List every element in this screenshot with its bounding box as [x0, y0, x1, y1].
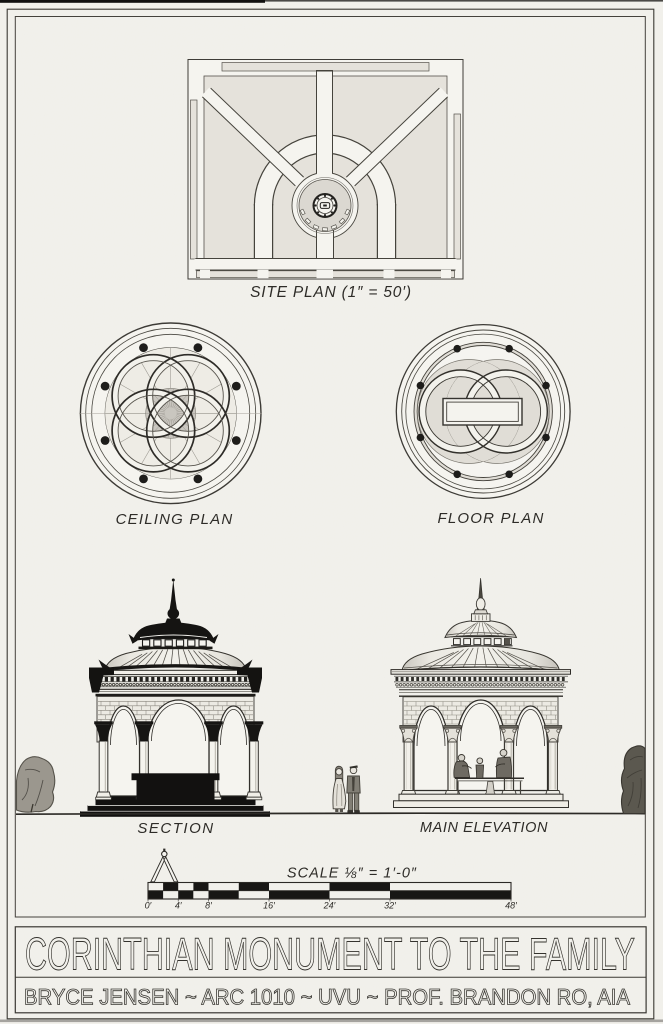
svg-text:48′: 48′ — [505, 901, 517, 911]
svg-text:FLOOR PLAN: FLOOR PLAN — [437, 510, 544, 527]
svg-text:32′: 32′ — [384, 901, 396, 911]
svg-text:4′: 4′ — [175, 901, 182, 911]
svg-text:0′: 0′ — [145, 901, 152, 911]
svg-text:16′: 16′ — [263, 901, 275, 911]
svg-text:CEILING PLAN: CEILING PLAN — [116, 511, 234, 528]
svg-text:24′: 24′ — [323, 901, 336, 911]
svg-text:SECTION: SECTION — [137, 820, 214, 837]
svg-text:MAIN ELEVATION: MAIN ELEVATION — [420, 820, 548, 836]
svg-text:SCALE ⅛″ = 1′-0″: SCALE ⅛″ = 1′-0″ — [287, 866, 417, 882]
svg-text:SITE PLAN (1″ = 50′): SITE PLAN (1″ = 50′) — [250, 284, 412, 301]
svg-text:8′: 8′ — [205, 901, 212, 911]
svg-text:CORINTHIAN MONUMENT TO THE FAM: CORINTHIAN MONUMENT TO THE FAMILY — [25, 929, 635, 980]
svg-text:BRYCE JENSEN ~ ARC 1010 ~ UVU: BRYCE JENSEN ~ ARC 1010 ~ UVU ~ PROF. BR… — [24, 985, 630, 1010]
